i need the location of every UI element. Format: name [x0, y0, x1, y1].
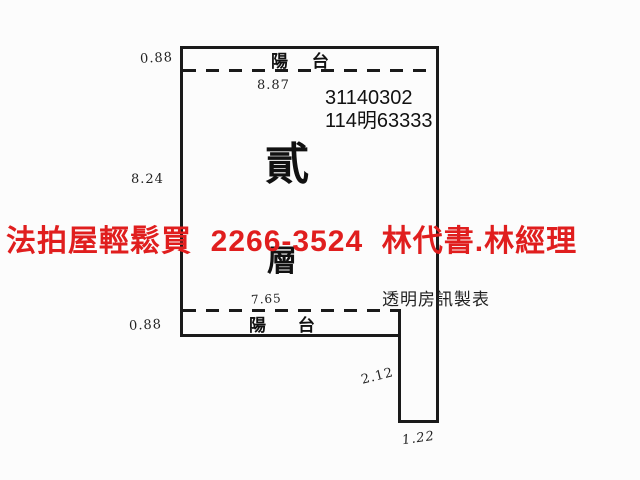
floor-character-top: 貳 [265, 128, 309, 192]
measurement-left-depth: 8.24 [131, 172, 164, 187]
measurement-extension-width: 1.22 [401, 429, 436, 448]
case-number-block: 31140302 114明63333 [325, 87, 433, 133]
measurement-bottom-width: 7.65 [251, 291, 282, 307]
measurement-extension-depth: 2.12 [360, 365, 396, 388]
ad-overlay-text: 法拍屋輕鬆買 2266-3524 林代書.林經理 [6, 216, 640, 260]
wall-extension-bottom [398, 420, 439, 423]
measurement-top-width: 8.87 [257, 78, 290, 93]
case-number-line2: 114明63333 [325, 110, 433, 133]
maker-credit: 透明房訊製表 [382, 285, 490, 310]
floorplan-canvas: 陽 台 陽 台 0.88 8.87 8.24 7.65 0.88 2.12 1.… [0, 0, 640, 480]
wall-extension-left [398, 309, 401, 423]
measurement-top-balcony-depth: 0.88 [140, 50, 174, 67]
measurement-bottom-balcony-depth: 0.88 [129, 317, 163, 334]
balcony-label-top: 陽 台 [271, 47, 329, 72]
case-number-line1: 31140302 [325, 87, 433, 110]
balcony-label-bottom: 陽 台 [249, 311, 315, 336]
wall-left [180, 46, 183, 337]
